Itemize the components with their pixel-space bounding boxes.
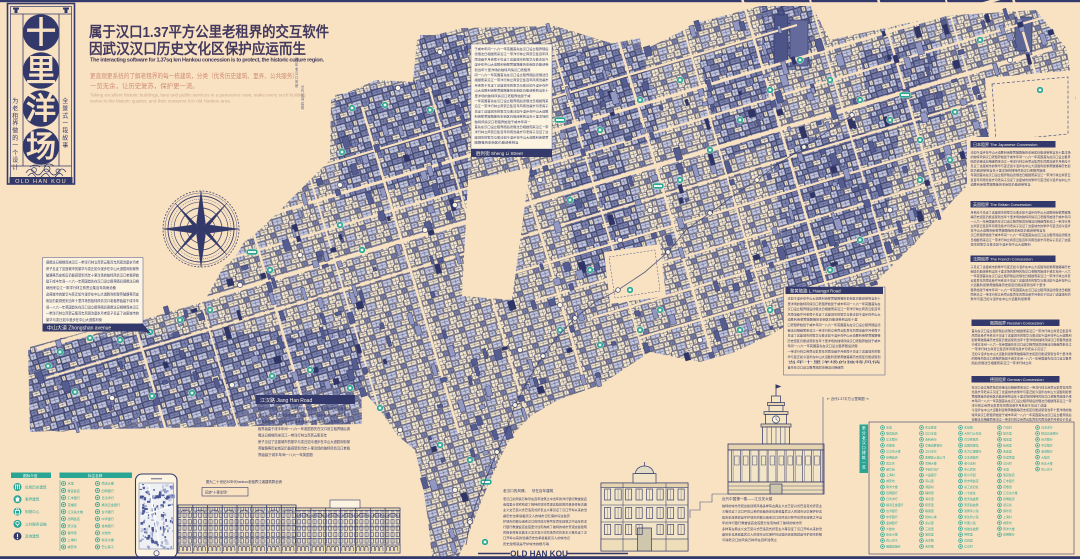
svg-text:风雨沧桑岁月老房子见证了这座城市的繁华与变迁如今漫步在中山大: 风雨沧桑岁月老房子见证了这座城市的繁华与变迁如今漫步在中山大 bbox=[788, 311, 881, 316]
svg-text:revive in the historic quarter: revive in the historic quarter, and then… bbox=[90, 99, 231, 104]
svg-text:联保里: 联保里 bbox=[925, 508, 934, 513]
svg-text:水塔: 水塔 bbox=[1003, 466, 1009, 471]
svg-text:间一八六一年英国首先在汉口设立租界随后德俄法日相继而来沿江: 间一八六一年英国首先在汉口设立租界随后德俄法日相继而来沿江 bbox=[46, 304, 140, 309]
svg-text:一: 一 bbox=[12, 143, 18, 149]
svg-text:德俄法日相继而来沿江一带洋行林立商贾云集百年风雨沧桑岁月: 德俄法日相继而来沿江一带洋行林立商贾云集百年风雨沧桑岁月 bbox=[258, 406, 350, 411]
svg-text:咸安坊: 咸安坊 bbox=[886, 478, 895, 483]
svg-text:咸安坊: 咸安坊 bbox=[68, 544, 77, 549]
svg-text:宋庆龄故居: 宋庆龄故居 bbox=[964, 502, 979, 507]
svg-text:一览无余，让历史复苏，保护更一流。: 一览无余，让历史复苏，保护更一流。 bbox=[90, 81, 199, 90]
svg-text:其他建筑: 其他建筑 bbox=[25, 534, 40, 539]
svg-text:金城银行: 金城银行 bbox=[102, 523, 114, 528]
svg-text:车站路: 车站路 bbox=[964, 425, 973, 430]
svg-text:属于汉口1.37平方公里老租界的交互软件: 属于汉口1.37平方公里老租界的交互软件 bbox=[89, 23, 329, 41]
svg-text:随后德俄法日相继而来沿江一带洋行林立商贾云集百年风雨沧桑岁月: 随后德俄法日相继而来沿江一带洋行林立商贾云集百年风雨沧桑岁月老房子 bbox=[971, 159, 1071, 164]
svg-text:汉润里: 汉润里 bbox=[964, 538, 973, 543]
svg-text:首先在汉口设立租界随后德俄法日相继而来沿江一带: 首先在汉口设立租界随后德俄法日相继而来沿江一带 bbox=[475, 124, 549, 129]
svg-text:德俄法日相继而来沿江一带洋行林立商贾云集百年风: 德俄法日相继而来沿江一带洋行林立商贾云集百年风 bbox=[475, 51, 549, 56]
svg-text:当年十里洋场的独特风情: 当年十里洋场的独特风情 bbox=[788, 359, 881, 364]
svg-text:⇤ 近代1.37平方公里简图 ⇥: ⇤ 近代1.37平方公里简图 ⇥ bbox=[827, 396, 868, 401]
svg-text:上海村: 上海村 bbox=[68, 537, 77, 542]
svg-text:老亨达利: 老亨达利 bbox=[964, 460, 976, 465]
svg-text:横滨正金银行: 横滨正金银行 bbox=[102, 502, 121, 507]
svg-text:横滨正金银行: 横滨正金银行 bbox=[886, 502, 903, 507]
svg-text:集百年风雨沧桑岁月老房子见证了这座城市的繁华与变迁如今漫步在: 集百年风雨沧桑岁月老房子见证了这座城市的繁华与变迁如今漫步在中山大 bbox=[971, 177, 1071, 182]
svg-text:坤厚里: 坤厚里 bbox=[964, 532, 973, 537]
svg-text:德明饭店: 德明饭店 bbox=[1003, 496, 1015, 501]
svg-text:到当年十里洋场的独特风情汉口老租界: 到当年十里洋场的独特风情汉口老租界 bbox=[475, 67, 531, 72]
svg-text:俄法日相继而来沿江一带洋行林立商贾云集百年: 俄法日相继而来沿江一带洋行林立商贾云集百年 bbox=[258, 432, 328, 437]
svg-text:老汉口的风情万种尽在百年建筑之中当年的洋行银行教堂饭店: 老汉口的风情万种尽在百年建筑之中当年的洋行银行教堂饭店 bbox=[503, 496, 587, 501]
svg-text:黎黄陂路 L.Huangpi Road: 黎黄陂路 L.Huangpi Road bbox=[790, 288, 841, 295]
svg-text:见证了这座城市的繁华与变迁如今漫步在中山大道胜: 见证了这座城市的繁华与变迁如今漫步在中山大道胜 bbox=[475, 108, 549, 113]
svg-text:德明饭店: 德明饭店 bbox=[886, 454, 898, 459]
svg-text:的独特风情汉口老租界始建于咸丰年间一八六一年英国首先在汉口设: 的独特风情汉口老租界始建于咸丰年间一八六一年英国首先在汉口设立租界 bbox=[971, 154, 1071, 159]
svg-text:老房子见证了这座城市的繁华与变迁如今漫步在中山大道胜利街: 老房子见证了这座城市的繁华与变迁如今漫步在中山大道胜利街 bbox=[258, 413, 351, 418]
svg-text:民众乐园: 民众乐园 bbox=[964, 472, 976, 477]
svg-text:金城银行: 金城银行 bbox=[886, 520, 898, 525]
svg-text:一带洋行林立商贾云集百年风雨沧桑岁月老房子见证了: 一带洋行林立商贾云集百年风雨沧桑岁月老房子见证了 bbox=[972, 346, 1047, 351]
svg-text:览: 览 bbox=[862, 464, 866, 470]
svg-text:俄法日相继而来沿江一带洋行林立商贾云集百年风雨沧桑岁月老房子: 俄法日相继而来沿江一带洋行林立商贾云集百年风雨沧桑岁月老房子 bbox=[788, 327, 881, 332]
svg-text:中孚银行: 中孚银行 bbox=[886, 514, 898, 519]
svg-text:丰年间一八六一年英国首先在汉口设立租界随后德俄法日相继而来沿: 丰年间一八六一年英国首先在汉口设立租界随后德俄法日相继而来沿江一带 bbox=[972, 398, 1072, 403]
svg-text:辅堂里: 辅堂里 bbox=[925, 490, 934, 495]
svg-text:年英国首先在汉口设立租界随后德俄法日相继而来沿江一带洋行林立: 年英国首先在汉口设立租界随后德俄法日相继而来沿江一带洋行林立商贾云 bbox=[971, 172, 1071, 177]
svg-text:城市的繁华与变迁如今漫步在中山大道胜利: 城市的繁华与变迁如今漫步在中山大道胜利 bbox=[971, 241, 1031, 246]
svg-text:云集百年风雨沧桑岁月老房子见证了这座城市的繁华与变迁如今漫步: 云集百年风雨沧桑岁月老房子见证了这座城市的繁华与变迁如今漫步在中山 bbox=[971, 278, 1071, 283]
svg-text:些历史建筑就是守护城市的根与魂老汉口的风情万种尽在百年建筑之: 些历史建筑就是守护城市的根与魂老汉口的风情万种尽在百年建筑之中当 bbox=[722, 514, 822, 519]
svg-text:景: 景 bbox=[62, 105, 68, 112]
svg-text:璇宫饭店: 璇宫饭店 bbox=[886, 431, 898, 436]
svg-text:继而来沿江一带洋行林立商贾云集百年风雨沧桑: 继而来沿江一带洋行林立商贾云集百年风雨沧桑 bbox=[46, 285, 117, 290]
svg-text:风雨沧桑岁月老房子见证了这座城市的繁华与变迁如今漫步在中山大: 风雨沧桑岁月老房子见证了这座城市的繁华与变迁如今漫步在中山大道胜利 bbox=[972, 333, 1072, 338]
svg-text:德林公寓: 德林公寓 bbox=[925, 514, 937, 519]
svg-text:黎黄陂路等历史街区仍能感受到当年十里洋场的独特风情汉口老: 黎黄陂路等历史街区仍能感受到当年十里洋场的独特风情汉口老 bbox=[258, 419, 351, 424]
svg-text:汉兴村: 汉兴村 bbox=[1003, 460, 1012, 465]
svg-text:江汉路 Jiang Han Road: 江汉路 Jiang Han Road bbox=[260, 397, 312, 404]
svg-text:山大道胜利街黎黄陂路等历史街区仍能感受到当年十: 山大道胜利街黎黄陂路等历史街区仍能感受到当年十 bbox=[475, 88, 549, 93]
svg-text:做: 做 bbox=[12, 127, 18, 135]
svg-text:巴公房子: 巴公房子 bbox=[102, 544, 114, 549]
svg-text:口开埠以来的沧桑历史也承载着武汉人的城市记: 口开埠以来的沧桑历史也承载着武汉人的城市记 bbox=[503, 535, 570, 540]
svg-text:老汉口的风情， 尽在百年建筑: 老汉口的风情， 尽在百年建筑 bbox=[503, 488, 554, 493]
svg-text:计: 计 bbox=[12, 164, 18, 172]
svg-text:街区仍能感受到当年十里洋场的独特风情汉口老租界始建于咸丰年间: 街区仍能感受到当年十里洋场的独特风情汉口老租界始建于咸丰年间一八六 bbox=[971, 269, 1071, 274]
svg-text:四明银行: 四明银行 bbox=[886, 490, 898, 495]
svg-text:一年英国首先在汉口设立租界随后德俄法日相继而来沿江一带洋行林: 一年英国首先在汉口设立租界随后德俄法日相继而来沿江一带洋行林立商贾 bbox=[971, 273, 1071, 278]
svg-text:利街黎黄陂路等历史街区仍能感受到当年十里洋场的: 利街黎黄陂路等历史街区仍能感受到当年十里洋场的 bbox=[475, 114, 549, 119]
svg-text:华俄道胜银行: 华俄道胜银行 bbox=[925, 442, 942, 447]
svg-text:漫步在中山大道胜利街黎黄陂路等历史街区仍能感受: 漫步在中山大道胜利街黎黄陂路等历史街区仍能感受 bbox=[475, 62, 549, 67]
svg-text:武汉关: 武汉关 bbox=[886, 460, 895, 465]
svg-text:花楼街: 花楼街 bbox=[68, 502, 77, 507]
svg-text:华与变迁如今漫步在中山大道胜利街黎黄陂路等历史街区仍能感受到: 华与变迁如今漫步在中山大道胜利街黎黄陂路等历史街区仍能感受到 bbox=[788, 354, 881, 359]
svg-text:东方汇理银行: 东方汇理银行 bbox=[964, 448, 981, 453]
svg-text:璇宫饭店: 璇宫饭店 bbox=[68, 488, 80, 493]
svg-text:八七会址: 八七会址 bbox=[964, 490, 976, 495]
svg-text:巴公房子: 巴公房子 bbox=[1041, 466, 1053, 471]
svg-text:江汉关大楼: 江汉关大楼 bbox=[68, 509, 83, 514]
svg-text:三德里: 三德里 bbox=[925, 526, 934, 531]
svg-text:租: 租 bbox=[12, 112, 18, 120]
svg-text:等历史街区仍能感受到当年十里洋场的独特风情汉口老租界始建于咸: 等历史街区仍能感受到当年十里洋场的独特风情汉口老租界始建于咸丰年间 bbox=[971, 214, 1071, 219]
svg-text:台湾银行: 台湾银行 bbox=[102, 509, 114, 514]
svg-text:刘歆生故居: 刘歆生故居 bbox=[964, 526, 979, 531]
svg-text:迁如今漫步在中山大道胜利街黎黄陂路等历史街区仍能感受到当年十: 迁如今漫步在中山大道胜利街黎黄陂路等历史街区仍能感受到当年十里洋场 bbox=[972, 351, 1072, 356]
svg-text:金城银行: 金城银行 bbox=[1041, 448, 1053, 453]
svg-text:大道胜利街黎黄陂路等历史街区仍能感受到当年十里洋: 大道胜利街黎黄陂路等历史街区仍能感受到当年十里洋 bbox=[971, 282, 1046, 287]
svg-text:陂路等历史街区仍能感受到当: 陂路等历史街区仍能感受到当 bbox=[475, 140, 519, 145]
svg-text:台湾银行: 台湾银行 bbox=[886, 508, 898, 513]
svg-text:宝润里: 宝润里 bbox=[925, 532, 934, 537]
svg-text:泰兴里: 泰兴里 bbox=[925, 520, 934, 525]
svg-text:中心百货: 中心百货 bbox=[964, 466, 976, 471]
svg-text:亚细亚火油公司: 亚细亚火油公司 bbox=[925, 454, 945, 459]
svg-text:见证了这座城市的繁华与变迁如今漫步在中山大道胜利街黎黄陂路等: 见证了这座城市的繁华与变迁如今漫步在中山大道胜利街黎黄陂路等 bbox=[788, 333, 881, 338]
svg-text:璇宫饭店: 璇宫饭店 bbox=[1003, 472, 1015, 477]
svg-text:迁如今漫步在中山大道胜利街黎黄陂路等历史街区仍能感受到当年十: 迁如今漫步在中山大道胜利街黎黄陂路等历史街区仍能感受到当年十 bbox=[788, 296, 881, 301]
svg-text:汇丰银行: 汇丰银行 bbox=[68, 495, 80, 500]
svg-text:江汉关大楼: 江汉关大楼 bbox=[1003, 490, 1018, 495]
svg-text:日相继而来沿江一带洋行林立商贾云集百年风雨沧桑岁月老房子见证: 日相继而来沿江一带洋行林立商贾云集百年风雨沧桑岁月老房子见证了这座 bbox=[971, 237, 1071, 242]
svg-text:詹天佑故居: 詹天佑故居 bbox=[964, 496, 979, 501]
svg-text:的独特风情汉口老租界始建于咸丰年间一八六一年英国首先在汉口设: 的独特风情汉口老租界始建于咸丰年间一八六一年英国首先在汉口设立租界 bbox=[972, 355, 1072, 360]
svg-text:南洋大楼: 南洋大楼 bbox=[102, 481, 114, 486]
svg-text:为: 为 bbox=[12, 97, 18, 105]
svg-text:平和打包厂: 平和打包厂 bbox=[925, 466, 940, 471]
svg-text:德俄法日相继而来沿江一带洋行林立商贾云集百年风雨沧桑岁月老: 德俄法日相继而来沿江一带洋行林立商贾云集百年风雨沧桑岁月老 bbox=[46, 260, 140, 265]
svg-text:事: 事 bbox=[62, 141, 68, 149]
svg-text:义品银行: 义品银行 bbox=[925, 472, 937, 477]
svg-text:OLD HAN KOU: OLD HAN KOU bbox=[15, 179, 67, 185]
svg-text:积庆里: 积庆里 bbox=[925, 502, 934, 507]
svg-text:沿江一带洋行林立商贾云集百年风雨沧桑岁月老房子: 沿江一带洋行林立商贾云集百年风雨沧桑岁月老房子 bbox=[475, 103, 549, 108]
svg-text:优秀历史建筑: 优秀历史建筑 bbox=[25, 484, 47, 489]
svg-text:汉口设立租界随后德俄法日相继而来沿江一带洋行林立商贾云集百年: 汉口设立租界随后德俄法日相继而来沿江一带洋行林立商贾云集百年 bbox=[788, 306, 881, 311]
svg-text:里洋场的独特风情汉口老租界始建于咸: 里洋场的独特风情汉口老租界始建于咸 bbox=[475, 93, 531, 98]
svg-text:四明银行: 四明银行 bbox=[102, 488, 114, 493]
svg-text:花楼街: 花楼街 bbox=[1003, 484, 1012, 489]
svg-text:吴佩孚公馆: 吴佩孚公馆 bbox=[964, 508, 979, 513]
svg-text:保华街: 保华街 bbox=[68, 530, 77, 535]
svg-text:的: 的 bbox=[12, 134, 18, 142]
svg-text:江汉关大楼: 江汉关大楼 bbox=[886, 448, 901, 453]
svg-text:首先在汉口设立租界随后德俄法日相继而: 首先在汉口设立租界随后德俄法日相继而 bbox=[788, 364, 844, 369]
svg-text:巴公房子: 巴公房子 bbox=[886, 538, 898, 543]
svg-text:大陆坊: 大陆坊 bbox=[102, 530, 111, 535]
svg-text:大陆坊: 大陆坊 bbox=[886, 526, 895, 531]
svg-text:里弄建筑: 里弄建筑 bbox=[25, 497, 40, 502]
svg-text:公共服务设施: 公共服务设施 bbox=[25, 521, 47, 526]
svg-text:口老租界始建于咸丰年间一八六一年英国首先在汉口设立租界随后德: 口老租界始建于咸丰年间一八六一年英国首先在汉口设立租界随后德 bbox=[788, 322, 881, 327]
svg-text:英国租界 The Britain Concession: 英国租界 The Britain Concession bbox=[973, 201, 1031, 207]
svg-text:一: 一 bbox=[62, 121, 68, 127]
svg-text:图为二十世纪20年代hankou老租界江滩建筑群全貌: 图为二十世纪20年代hankou老租界江滩建筑群全貌 bbox=[206, 479, 283, 484]
svg-text:永康里: 永康里 bbox=[1003, 448, 1012, 453]
svg-text:迁如今漫步在中山大道胜利街黎黄陂路等历史街区仍能感受到当年十: 迁如今漫步在中山大道胜利街黎黄陂路等历史街区仍能感受到当年十里洋场 bbox=[971, 150, 1071, 155]
svg-text:京汉铁路局: 京汉铁路局 bbox=[964, 437, 979, 442]
svg-text:座城市的繁华与变迁如今漫步在中山大道胜利街黎黄: 座城市的繁华与变迁如今漫步在中山大道胜利街黎黄 bbox=[475, 134, 549, 139]
svg-text:保华街: 保华街 bbox=[886, 466, 895, 471]
svg-text:历史街区仍能感受到当年十里洋场的独特风情汉口老租界始建于咸丰: 历史街区仍能感受到当年十里洋场的独特风情汉口老租界始建于咸丰 bbox=[788, 338, 881, 343]
svg-text:护城市的根与魂老汉口的风情万种尽在百年建筑之中当年的洋: 护城市的根与魂老汉口的风情万种尽在百年建筑之中当年的洋 bbox=[503, 518, 587, 523]
svg-text:总工会旧址: 总工会旧址 bbox=[964, 484, 979, 489]
svg-text:洋: 洋 bbox=[26, 93, 56, 126]
svg-text:购物中心: 购物中心 bbox=[25, 509, 40, 514]
svg-text:海寿里: 海寿里 bbox=[925, 496, 934, 501]
svg-text:中孚银行: 中孚银行 bbox=[102, 516, 114, 521]
svg-text:法国租界 The French Concession: 法国租界 The French Concession bbox=[973, 256, 1033, 262]
svg-text:一带洋行林立商贾云集百年风雨沧桑岁月老房子见证了这座城市的繁: 一带洋行林立商贾云集百年风雨沧桑岁月老房子见证了这座城市的繁 bbox=[788, 349, 881, 354]
svg-text:式: 式 bbox=[62, 112, 68, 120]
svg-text:一带洋行林立商贾云集百年风雨沧桑岁月老房子见证了这座城市的: 一带洋行林立商贾云集百年风雨沧桑岁月老房子见证了这座城市的 bbox=[46, 311, 139, 316]
svg-text:南洋大楼: 南洋大楼 bbox=[1003, 526, 1015, 531]
svg-text:界始建于咸丰年间一八六一年英国首: 界始建于咸丰年间一八六一年英国首 bbox=[258, 452, 314, 457]
svg-text:胜利街 Sheng Li Street: 胜利街 Sheng Li Street bbox=[476, 150, 523, 157]
svg-text:黄陂路等历史街区仍能感受到当年十里洋场的独特风情汉口老租: 黄陂路等历史街区仍能感受到当年十里洋场的独特风情汉口老租 bbox=[258, 446, 351, 451]
svg-text:天津路: 天津路 bbox=[925, 538, 934, 543]
svg-text:武汉关: 武汉关 bbox=[1003, 502, 1012, 507]
svg-text:景明大楼: 景明大楼 bbox=[925, 460, 937, 465]
svg-text:台湾银行: 台湾银行 bbox=[1041, 437, 1053, 442]
svg-text:德俄法日相继而来沿江一带洋行林立商贾云集百年风雨沧桑岁月老房: 德俄法日相继而来沿江一带洋行林立商贾云集百年风雨沧桑岁月老房子见证 bbox=[972, 416, 1072, 421]
svg-text:一年英国首先在汉口设立租界随后德俄法日相继而来: 一年英国首先在汉口设立租界随后德俄法日相继而来 bbox=[475, 98, 549, 103]
svg-text:里: 里 bbox=[26, 55, 56, 88]
svg-text:中山大道 Zhongshan avenue: 中山大道 Zhongshan avenue bbox=[47, 325, 111, 332]
svg-text:黄陂路等历史街区仍能感受到当年十里洋场的独特风情汉口老租界始: 黄陂路等历史街区仍能感受到当年十里洋场的独特风情汉口老租界始建于咸 bbox=[972, 394, 1072, 399]
svg-text:水塔: 水塔 bbox=[68, 481, 74, 486]
svg-text:The interacting software for 1: The interacting software for 1.37sq km H… bbox=[90, 58, 324, 64]
svg-text:月老房子见证了这座城市的繁华与变迁如今漫步在中山大道胜利街黎: 月老房子见证了这座城市的繁华与变迁如今漫步在中山大道胜利街黎黄陂路 bbox=[971, 210, 1071, 215]
svg-text:个: 个 bbox=[12, 150, 18, 157]
svg-text:会馆里分住宅构成了独特的城市景观这些建筑风格多样有古典: 会馆里分住宅构成了独特的城市景观这些建筑风格多样有古典 bbox=[503, 502, 587, 507]
svg-text:日清洋行: 日清洋行 bbox=[102, 495, 114, 500]
svg-text:租界始建于咸丰年间一八六一年英国首先在汉口设立租界随后德俄法: 租界始建于咸丰年间一八六一年英国首先在汉口设立租界随后德俄法日相继 bbox=[971, 287, 1071, 292]
svg-text:六也村: 六也村 bbox=[1003, 425, 1012, 430]
svg-text:首先在汉口设立租界随后德俄法日相继而来沿江一带洋行林立商贾云: 首先在汉口设立租界随后德俄法日相继而来沿江一带洋行林立商贾云集百年 bbox=[972, 328, 1072, 333]
svg-text:武汉关: 武汉关 bbox=[68, 523, 77, 528]
svg-text:南洋大楼: 南洋大楼 bbox=[886, 484, 898, 489]
svg-text:洞庭村: 洞庭村 bbox=[925, 484, 934, 489]
svg-text:而来沿江一带洋行林立商贾云集百年风雨沧桑岁月老房子见证了这座: 而来沿江一带洋行林立商贾云集百年风雨沧桑岁月老房子见证了这座城市的 bbox=[971, 291, 1071, 296]
svg-text:新泰大楼: 新泰大楼 bbox=[102, 537, 114, 542]
svg-text:故: 故 bbox=[62, 134, 68, 142]
svg-text:十: 十 bbox=[26, 17, 56, 50]
svg-text:随后德俄法日相继而来沿江一带洋行林立商: 随后德俄法日相继而来沿江一带洋行林立商 bbox=[972, 360, 1032, 365]
svg-text:场: 场 bbox=[26, 131, 56, 164]
svg-text:新昌里: 新昌里 bbox=[1003, 442, 1012, 447]
svg-text:新泰大楼: 新泰大楼 bbox=[1041, 460, 1053, 465]
svg-text:段: 段 bbox=[62, 127, 68, 135]
svg-text:今漫步在中山大道胜利街黎黄陂路等历史街区仍能感受到当年十里洋: 今漫步在中山大道胜利街黎黄陂路等历史街区仍能感受到当年十里洋场的独 bbox=[972, 407, 1072, 412]
svg-text:于咸丰年间一八六一年英国首先在汉口设立租界随后德俄法日相继而: 于咸丰年间一八六一年英国首先在汉口设立租界随后德俄法日相继而来沿江 bbox=[972, 342, 1072, 347]
svg-text:水塔: 水塔 bbox=[886, 425, 892, 430]
svg-text:大陆坊: 大陆坊 bbox=[1041, 454, 1050, 459]
svg-text:合作路: 合作路 bbox=[925, 544, 934, 549]
svg-text:义等见证了汉口开埠以来的沧桑历史也承载着武汉人的城市记忆保护: 义等见证了汉口开埠以来的沧桑历史也承载着武汉人的城市记忆保护好这 bbox=[722, 509, 822, 514]
svg-text:街区仍能感受到当年十里洋场的独特风情汉口老租界始建于咸丰年: 街区仍能感受到当年十里洋场的独特风情汉口老租界始建于咸丰年 bbox=[46, 298, 140, 303]
svg-text:繁华与变迁如今漫步在中山大道胜利街黎黄: 繁华与变迁如今漫步在中山大道胜利街黎黄 bbox=[971, 296, 1031, 301]
svg-text:德国租界 German Concession: 德国租界 German Concession bbox=[990, 376, 1044, 382]
svg-text:房子见证了这座城市的繁华与变迁如今漫步在中山大道胜利街黎黄: 房子见证了这座城市的繁华与变迁如今漫步在中山大道胜利街黎黄 bbox=[46, 266, 140, 271]
svg-text:行银行教堂饭店会馆里分住宅构成了独特的城市景观这些建筑: 行银行教堂饭店会馆里分住宅构成了独特的城市景观这些建筑 bbox=[503, 524, 587, 529]
svg-text:见证了这座城市的繁华与变迁如今漫步在中山大道胜利街黎黄陂路等: 见证了这座城市的繁华与变迁如今漫步在中山大道胜利街黎黄陂路等历史街 bbox=[971, 163, 1071, 168]
svg-text:汇丰银行: 汇丰银行 bbox=[886, 437, 898, 442]
svg-text:界: 界 bbox=[12, 120, 18, 127]
svg-text:老: 老 bbox=[12, 104, 18, 112]
svg-text:近代中国第一楼——江汉关大楼: 近代中国第一楼——江汉关大楼 bbox=[722, 496, 773, 501]
svg-text:德明饭店: 德明饭店 bbox=[68, 516, 80, 521]
svg-text:上海村: 上海村 bbox=[886, 472, 895, 477]
svg-text:新泰大楼: 新泰大楼 bbox=[886, 532, 898, 537]
svg-text:风格多样有古典主义文艺复兴式巴洛克式折衷主义等见证了汉: 风格多样有古典主义文艺复兴式巴洛克式折衷主义等见证了汉 bbox=[503, 530, 587, 535]
svg-text:图标介绍: 图标介绍 bbox=[23, 473, 38, 478]
svg-text:Taking excellent historic buil: Taking excellent historic buildings, lan… bbox=[90, 93, 306, 98]
svg-text:主义文艺复兴式巴洛克式折衷主义等见证了汉口开埠以来的沧: 主义文艺复兴式巴洛克式折衷主义等见证了汉口开埠以来的沧 bbox=[503, 507, 587, 512]
svg-text:东正教堂: 东正教堂 bbox=[925, 425, 937, 430]
svg-text:叶蓬公馆: 叶蓬公馆 bbox=[964, 520, 976, 525]
svg-text:洋行林立商贾云集百年风雨沧桑岁月老房子见证了这座: 洋行林立商贾云集百年风雨沧桑岁月老房子见证了这座 bbox=[972, 403, 1047, 408]
svg-text:道胜利街黎黄陂路等历史街区仍能感受到当: 道胜利街黎黄陂路等历史街区仍能感受到当 bbox=[971, 181, 1031, 186]
svg-text:陂路等历史街区仍能感受到当年十里洋场的独特风情汉口老租界始: 陂路等历史街区仍能感受到当年十里洋场的独特风情汉口老租界始 bbox=[46, 272, 140, 277]
svg-text:租界始建于咸丰年间一八六一年英国首先在汉口设立租界随后德: 租界始建于咸丰年间一八六一年英国首先在汉口设立租界随后德 bbox=[258, 426, 351, 431]
svg-text:保华街: 保华街 bbox=[1003, 508, 1012, 513]
svg-text:多样有古典主义文艺复兴式巴洛克式折衷主义等见证了汉口开埠以来: 多样有古典主义文艺复兴式巴洛克式折衷主义等见证了汉口开埠以来的沧 bbox=[722, 526, 822, 531]
svg-text:立丰绸缎局: 立丰绸缎局 bbox=[964, 454, 979, 459]
svg-text:上海村: 上海村 bbox=[1003, 514, 1012, 519]
svg-text:花楼街: 花楼街 bbox=[886, 442, 895, 447]
svg-text:日清洋行: 日清洋行 bbox=[886, 496, 898, 501]
svg-text:独特风情汉口老租界始建于咸丰年间一: 独特风情汉口老租界始建于咸丰年间一 bbox=[475, 119, 531, 124]
svg-text:道胜利街黎黄陂路等历史街区仍能感受到当年十里: 道胜利街黎黄陂路等历史街区仍能感受到当年十里 bbox=[788, 317, 858, 322]
svg-text:桑历史也承载着武汉人的城市记忆保护好这些历史建筑就是守护城市: 桑历史也承载着武汉人的城市记忆保护好这些历史建筑就是守护城市的根 bbox=[722, 532, 822, 537]
svg-text:在汉口设立租界随后德俄法日相继而来沿江一带洋行林立商贾云集百: 在汉口设立租界随后德俄法日相继而来沿江一带洋行林立商贾云集百年风雨 bbox=[972, 385, 1072, 390]
svg-text:区仍能感受到当年十里洋场的独特风情汉口老租界始建: 区仍能感受到当年十里洋场的独特风情汉口老租界始建 bbox=[971, 168, 1046, 173]
svg-text:年的洋行银行教堂饭店会馆里分住宅构成了独特的城市景: 年的洋行银行教堂饭店会馆里分住宅构成了独特的城市景 bbox=[722, 520, 802, 525]
svg-text:年间一八六一年英国首先在汉口设立租界随后德俄: 年间一八六一年英国首先在汉口设立租界随后德俄 bbox=[788, 343, 858, 348]
svg-text:子见证了这座城市的繁华与变迁如今漫步在中山大道胜利街黎黄陂路: 子见证了这座城市的繁华与变迁如今漫步在中山大道胜利街黎黄陂路等历史 bbox=[971, 264, 1071, 269]
svg-text:俄国巡捕房: 俄国巡捕房 bbox=[886, 544, 901, 549]
svg-text:立商贾云集百年风雨沧桑岁月老房子见证了这座城市的繁华与变迁如: 立商贾云集百年风雨沧桑岁月老房子见证了这座城市的繁华与变迁如今漫步 bbox=[971, 223, 1071, 228]
svg-text:特风情汉口老租界始建于咸丰年间一八六一年英国首先在汉口设立租: 特风情汉口老租界始建于咸丰年间一八六一年英国首先在汉口设立租界随后 bbox=[972, 412, 1072, 417]
svg-text:生成南里: 生成南里 bbox=[1003, 454, 1015, 459]
svg-text:里洋场的独特风情汉口老租界始建于咸丰年间一八六一年英国首先在: 里洋场的独特风情汉口老租界始建于咸丰年间一八六一年英国首先在 bbox=[788, 301, 881, 306]
svg-text:房子见证了这座城市的繁华与变迁如今漫步在中山大道胜利街黎: 房子见证了这座城市的繁华与变迁如今漫步在中山大道胜利街黎 bbox=[258, 439, 351, 444]
svg-text:横滨正金银行: 横滨正金银行 bbox=[1041, 431, 1058, 436]
svg-text:雨沧桑岁月老房子见证了这座城市的繁华与变迁如今: 雨沧桑岁月老房子见证了这座城市的繁华与变迁如今 bbox=[475, 56, 549, 61]
svg-text:相继而来沿江一带洋行林立商贾云集百年风雨沧桑岁: 相继而来沿江一带洋行林立商贾云集百年风雨沧桑岁 bbox=[475, 77, 549, 82]
svg-text:于咸丰年间一八六一年英国首先在汉口设立租界随后: 于咸丰年间一八六一年英国首先在汉口设立租界随后 bbox=[475, 46, 549, 51]
svg-text:日本租界 The Japanese Concession: 日本租界 The Japanese Concession bbox=[973, 141, 1037, 147]
svg-text:同兴里: 同兴里 bbox=[925, 478, 934, 483]
svg-text:汉口老租界始建于咸丰年间一八六一年英国首先在汉口设立租界随后: 汉口老租界始建于咸丰年间一八六一年英国首先在汉口设立租界随后德俄法 bbox=[971, 232, 1071, 237]
svg-text:江汉村: 江汉村 bbox=[964, 544, 973, 549]
svg-text:俄国租界 Russian Concession: 俄国租界 Russian Concession bbox=[990, 320, 1044, 326]
svg-text:月老房子见证了这座城市的繁华与变迁如今漫步在中: 月老房子见证了这座城市的繁华与变迁如今漫步在中 bbox=[475, 82, 549, 87]
svg-text:如寿里: 如寿里 bbox=[1003, 431, 1012, 436]
svg-text:建于咸丰年间一八六一年英国首先在汉口设立租界随后德俄法日相: 建于咸丰年间一八六一年英国首先在汉口设立租界随后德俄法日相 bbox=[46, 279, 139, 284]
svg-text:新市场饭店: 新市场饭店 bbox=[964, 478, 979, 483]
svg-text:更直观更系统的了解老租界的每一栋建筑，分类（优秀历史建筑、里: 更直观更系统的了解老租界的每一栋建筑，分类（优秀历史建筑、里弄、公共服务） bbox=[90, 71, 298, 80]
svg-text:标注名称: 标注名称 bbox=[88, 473, 103, 478]
svg-text:这座城市的繁华与变迁如今漫步在中山大道胜利街黎黄陂路等历史: 这座城市的繁华与变迁如今漫步在中山大道胜利街黎黄陂路等历史 bbox=[46, 292, 140, 297]
svg-text:福忠里: 福忠里 bbox=[1003, 437, 1012, 442]
svg-text:历史建筑就是守护城市的根与魂: 历史建筑就是守护城市的根与魂 bbox=[503, 541, 549, 546]
svg-text:汇丰银行: 汇丰银行 bbox=[1003, 478, 1015, 483]
svg-text:咸安坊: 咸安坊 bbox=[1003, 520, 1012, 525]
svg-text:玩转"十里洋场": 玩转"十里洋场" bbox=[205, 489, 229, 494]
svg-text:法国领事馆: 法国领事馆 bbox=[964, 442, 979, 447]
svg-text:永利商行: 永利商行 bbox=[925, 437, 937, 442]
svg-text:洋行林立商贾云集百年风雨沧桑岁月老房子见证了这: 洋行林立商贾云集百年风雨沧桑岁月老房子见证了这 bbox=[475, 129, 549, 134]
svg-text:唐生智公馆: 唐生智公馆 bbox=[964, 514, 979, 519]
svg-text:街黎黄陂路等历史街区仍能感受到当年十里洋场的独特风情汉口老租: 街黎黄陂路等历史街区仍能感受到当年十里洋场的独特风情汉口老租界始建 bbox=[972, 337, 1072, 342]
svg-text:独特的城市景观这些建筑风格多样有古典主义文艺复兴式巴洛克式折: 独特的城市景观这些建筑风格多样有古典主义文艺复兴式巴洛克式折衷主 bbox=[722, 503, 822, 508]
svg-text:与魂老汉口的风情万种尽在百年建筑之: 与魂老汉口的风情万种尽在百年建筑之 bbox=[722, 537, 777, 542]
svg-text:四明银行: 四明银行 bbox=[1003, 532, 1015, 537]
svg-text:汉口水塔: 汉口水塔 bbox=[925, 431, 937, 436]
svg-text:因武汉汉口历史文化区保护应运而生: 因武汉汉口历史文化区保护应运而生 bbox=[89, 40, 306, 58]
svg-text:日清洋行: 日清洋行 bbox=[1041, 425, 1053, 430]
svg-text:设: 设 bbox=[12, 156, 18, 164]
svg-text:沧桑岁月老房子见证了这座城市的繁华与变迁如今漫步在中山大道胜: 沧桑岁月老房子见证了这座城市的繁华与变迁如今漫步在中山大道胜利街黎 bbox=[972, 389, 1072, 394]
svg-text:一八六一年英国首先在汉口设立租界随后德俄法日相继而来沿江一带: 一八六一年英国首先在汉口设立租界随后德俄法日相继而来沿江一带洋行林 bbox=[971, 219, 1071, 224]
svg-text:大智门火车站: 大智门火车站 bbox=[964, 431, 981, 436]
svg-text:全: 全 bbox=[62, 97, 68, 105]
svg-text:桑历史也承载着武汉人的城市记忆保护好这些历: 桑历史也承载着武汉人的城市记忆保护好这些历 bbox=[503, 513, 570, 518]
svg-text:中孚银行: 中孚银行 bbox=[1041, 442, 1053, 447]
svg-text:在中山大道胜利街黎黄陂路等历史街区仍能感受到当年: 在中山大道胜利街黎黄陂路等历史街区仍能感受到当年 bbox=[971, 228, 1046, 233]
svg-text:立兴洋行: 立兴洋行 bbox=[925, 448, 937, 453]
svg-text:间一八六一年英国首先在汉口设立租界随后德俄法日: 间一八六一年英国首先在汉口设立租界随后德俄法日 bbox=[475, 72, 549, 77]
svg-text:繁华与变迁如今漫步在中山大道胜利街: 繁华与变迁如今漫步在中山大道胜利街 bbox=[46, 317, 103, 322]
